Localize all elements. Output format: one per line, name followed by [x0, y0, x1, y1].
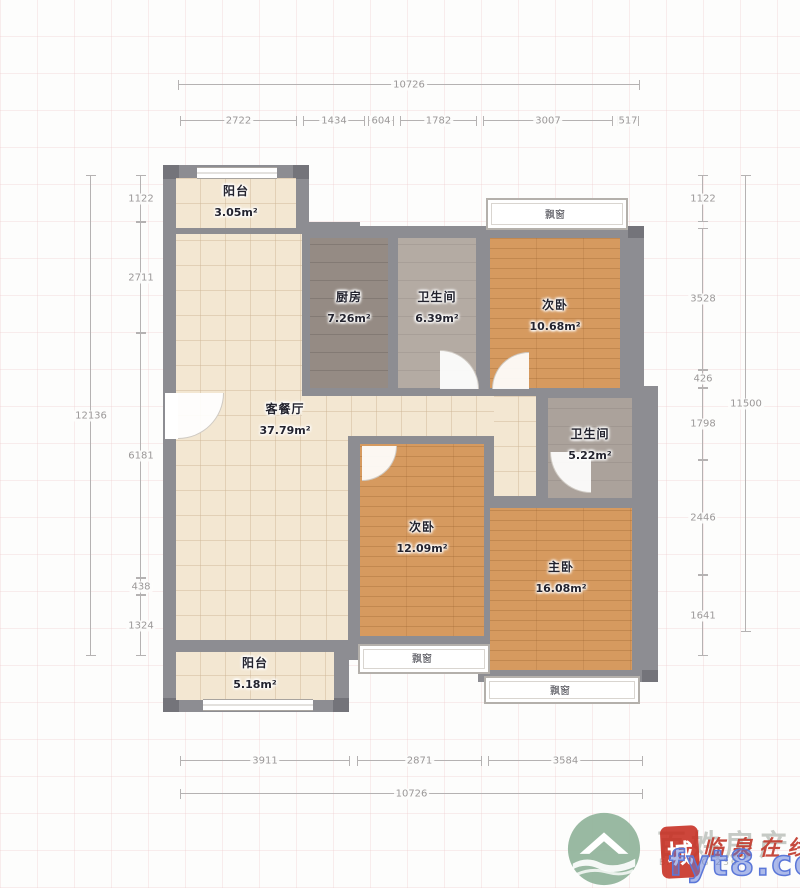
- dim-label: 10726: [391, 80, 427, 91]
- dim-top-seg-5: 3007: [483, 120, 613, 121]
- dim-label: 2711: [126, 272, 155, 283]
- room-label-bedroom-top: 次卧 10.68m²: [490, 296, 620, 333]
- dim-top-seg-4: 1782: [400, 120, 477, 121]
- dim-label: 1641: [688, 610, 717, 621]
- dim-label: 1798: [688, 419, 717, 430]
- room-living-dining-floor: [176, 234, 302, 640]
- dim-label: 1324: [126, 620, 155, 631]
- dim-label: 3911: [250, 756, 279, 767]
- room-label-balcony-top: 阳台 3.05m²: [176, 182, 296, 219]
- room-area: 5.18m²: [176, 678, 334, 691]
- room-name: 次卧: [360, 518, 484, 535]
- dim-label: 1782: [424, 116, 453, 127]
- dim-label: 1434: [319, 116, 348, 127]
- room-name: 厨房: [310, 288, 388, 305]
- window-band: [203, 699, 313, 711]
- wall-corner: [642, 670, 658, 682]
- dim-label: 604: [369, 116, 392, 127]
- dim-label: 426: [691, 374, 714, 385]
- room-area: 7.26m²: [310, 312, 388, 325]
- wall-corner: [163, 698, 179, 712]
- room-label-living-dining: 客餐厅 37.79m²: [210, 400, 360, 437]
- dim-bottom-seg-3: 3584: [488, 760, 643, 761]
- dim-label: 12136: [73, 410, 109, 421]
- room-name: 阳台: [176, 654, 334, 671]
- dim-bottom-seg-2: 2871: [357, 760, 482, 761]
- dim-label: 2446: [688, 512, 717, 523]
- dim-bottom-total: 10726: [180, 793, 643, 794]
- dim-top-seg-6: 517: [617, 120, 639, 121]
- dim-label: 3584: [551, 756, 580, 767]
- dim-right-total: 11500: [745, 175, 746, 632]
- room-area: 12.09m²: [360, 542, 484, 555]
- dim-bottom-seg-1: 3911: [180, 760, 350, 761]
- bay-window-label: 飘窗: [486, 206, 624, 221]
- dim-label: 11500: [728, 398, 764, 409]
- dim-left-total: 12136: [90, 175, 91, 656]
- dim-label: 3528: [688, 294, 717, 305]
- watermark-logo-icon: [565, 810, 643, 888]
- wall-corner: [293, 165, 309, 179]
- dim-right-seg-6: 1641: [702, 575, 703, 656]
- room-label-kitchen: 厨房 7.26m²: [310, 288, 388, 325]
- hallway-floor: [494, 396, 536, 496]
- room-name: 阳台: [176, 182, 296, 199]
- dim-top-seg-1: 2722: [180, 120, 297, 121]
- wall-corner: [163, 165, 179, 179]
- dim-left-seg-2: 2711: [140, 222, 141, 333]
- bay-window-label: 飘窗: [484, 682, 636, 697]
- wall-corner: [628, 226, 644, 238]
- dim-right-seg-3: 426: [702, 370, 703, 388]
- dim-right-seg-5: 2446: [702, 460, 703, 575]
- dim-left-seg-5: 1324: [140, 595, 141, 656]
- room-name: 客餐厅: [210, 400, 360, 417]
- dim-left-seg-1: 1122: [140, 175, 141, 222]
- room-area: 16.08m²: [490, 582, 632, 595]
- dim-label: 438: [129, 581, 152, 592]
- entry-door-opening: [165, 393, 178, 439]
- room-label-bath-1: 卫生间 6.39m²: [398, 288, 476, 325]
- wall-corner: [333, 698, 349, 712]
- room-area: 6.39m²: [398, 312, 476, 325]
- room-area: 5.22m²: [548, 449, 632, 462]
- dim-left-seg-4: 438: [140, 578, 141, 595]
- dim-right-seg-2: 3528: [702, 228, 703, 370]
- dim-top-total: 10726: [178, 84, 640, 85]
- dim-label: 2722: [224, 116, 253, 127]
- room-label-bath-2: 卫生间 5.22m²: [548, 425, 632, 462]
- dim-top-seg-3: 604: [368, 120, 394, 121]
- dim-label: 1122: [688, 193, 717, 204]
- dim-right-seg-4: 1798: [702, 388, 703, 460]
- dim-top-seg-2: 1434: [303, 120, 365, 121]
- dim-label: 2871: [405, 756, 434, 767]
- window-band: [197, 167, 277, 179]
- dim-label: 517: [616, 116, 639, 127]
- dim-label: 10726: [394, 789, 430, 800]
- watermark-url-text: fyt8.com: [669, 844, 800, 884]
- watermark: 百姓房产 BAIXING 236 城 临泉在线 fyt8.com: [565, 806, 800, 888]
- room-name: 主卧: [490, 558, 632, 575]
- room-label-bedroom-mid: 次卧 12.09m²: [360, 518, 484, 555]
- room-name: 卫生间: [548, 425, 632, 442]
- dim-label: 3007: [533, 116, 562, 127]
- room-area: 37.79m²: [210, 424, 360, 437]
- dim-right-seg-1: 1122: [702, 175, 703, 222]
- dim-left-seg-3: 6181: [140, 333, 141, 578]
- dim-label: 6181: [126, 450, 155, 461]
- room-name: 卫生间: [398, 288, 476, 305]
- floorplan-page: 10726 2722 1434 604 1782 3007 517 3911 2…: [0, 0, 800, 888]
- room-label-balcony-bottom: 阳台 5.18m²: [176, 654, 334, 691]
- bay-window-label: 飘窗: [358, 650, 486, 665]
- room-area: 3.05m²: [176, 206, 296, 219]
- room-label-master-bedroom: 主卧 16.08m²: [490, 558, 632, 595]
- dim-label: 1122: [126, 193, 155, 204]
- room-area: 10.68m²: [490, 320, 620, 333]
- room-name: 次卧: [490, 296, 620, 313]
